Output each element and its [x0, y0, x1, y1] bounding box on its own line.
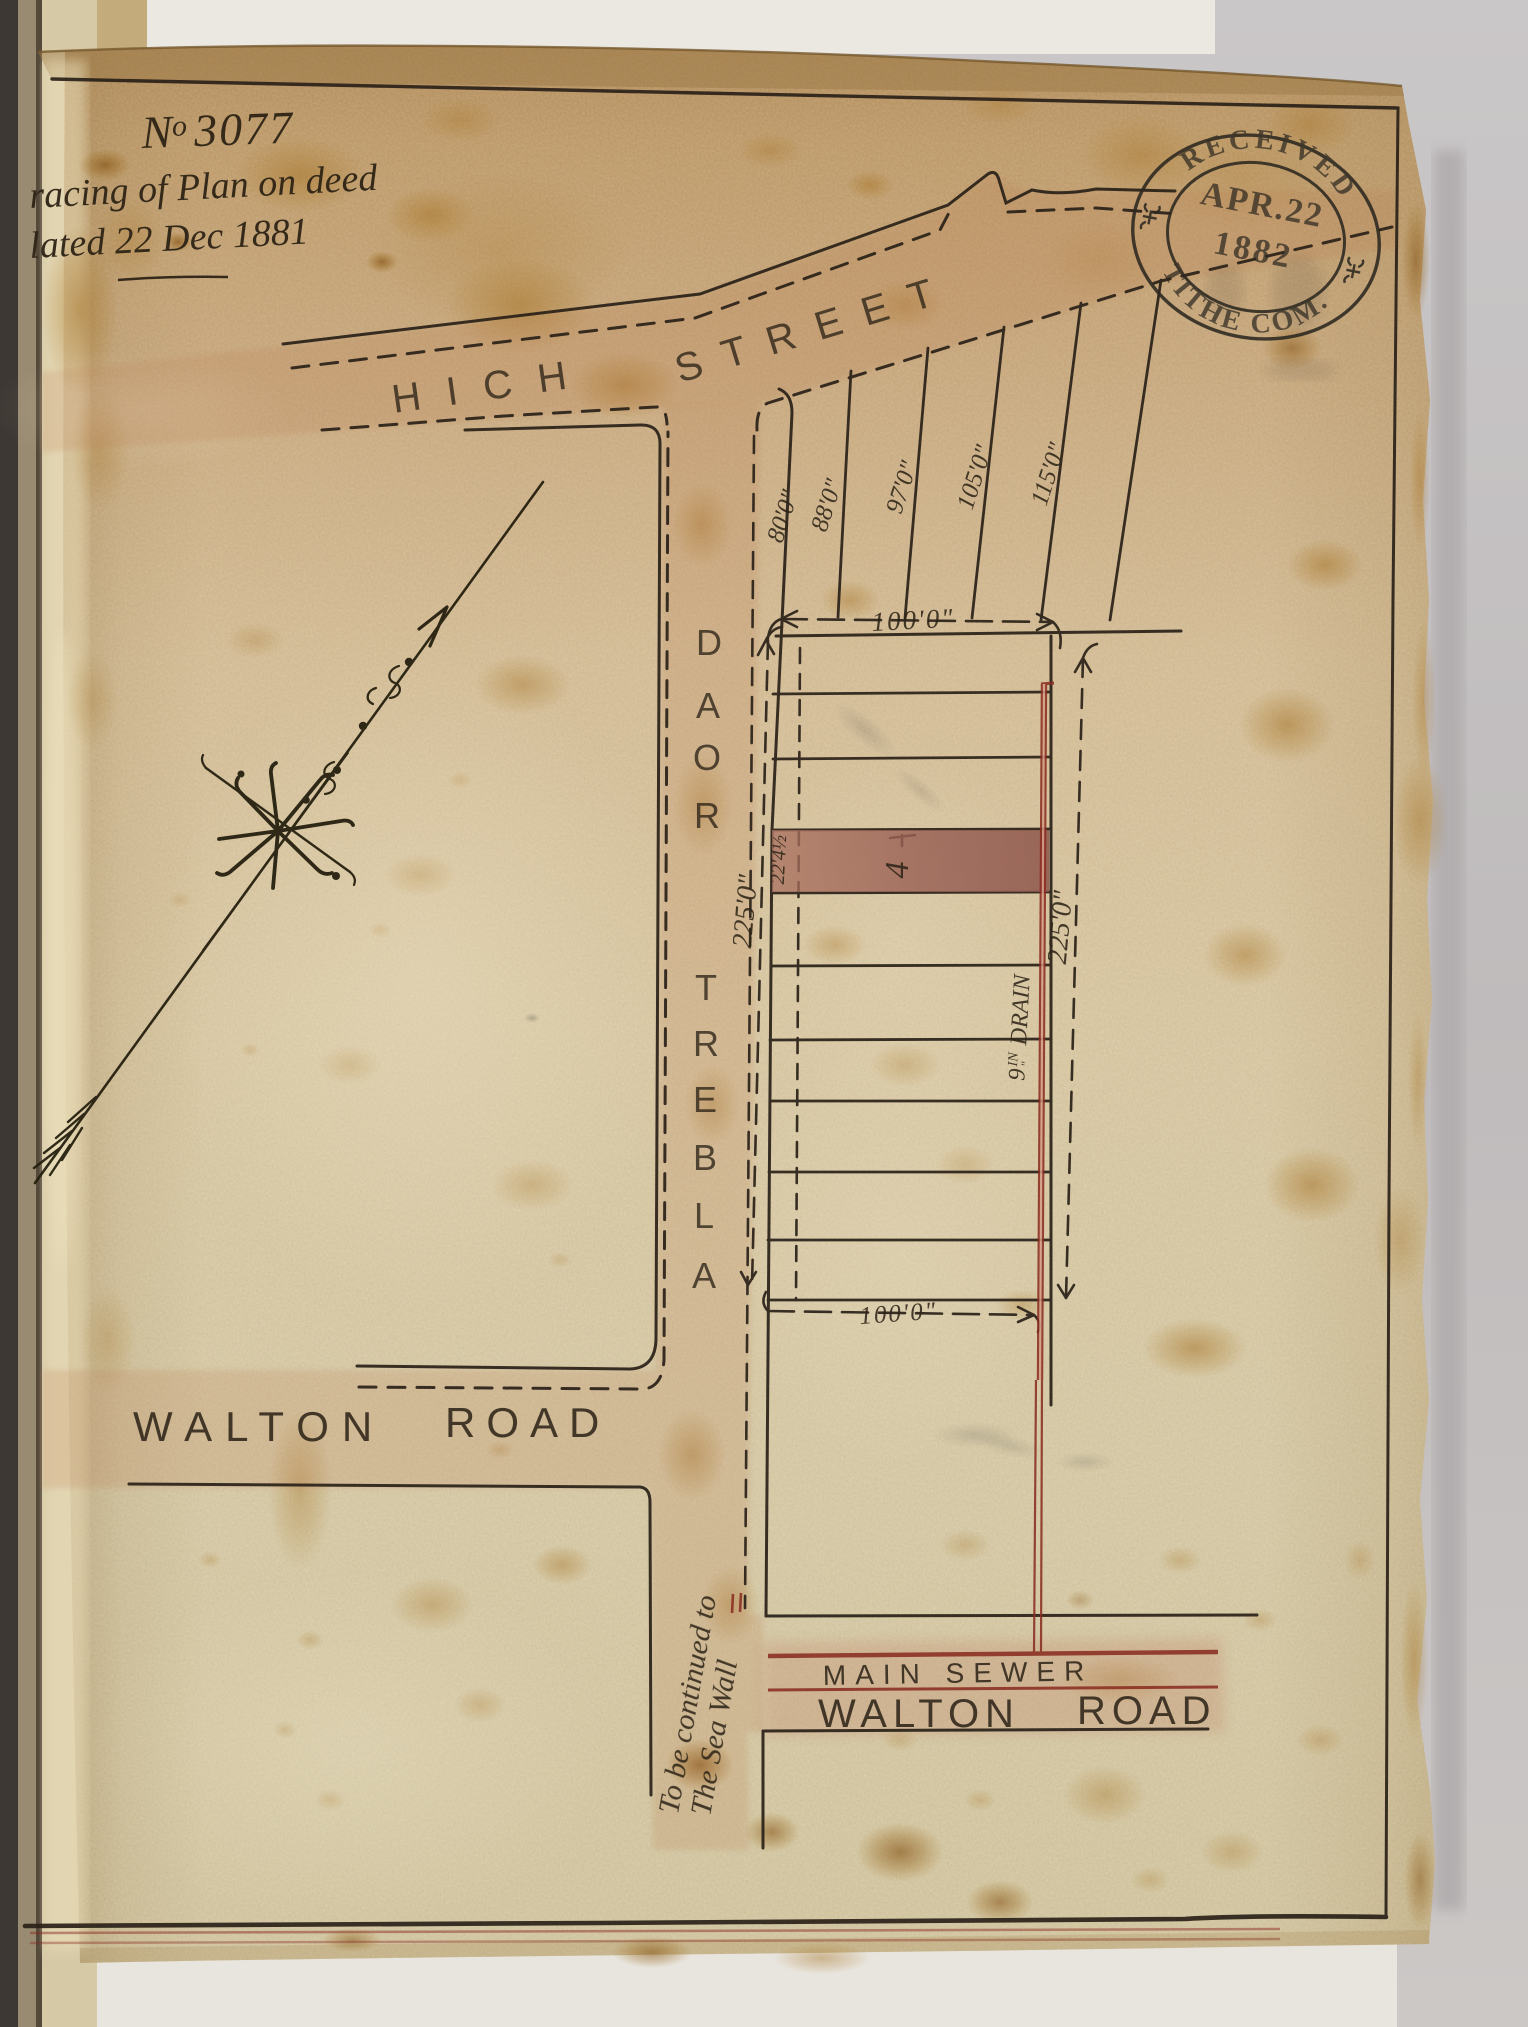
- svg-text:MAIN SEWER: MAIN SEWER: [823, 1655, 1094, 1691]
- svg-text:R: R: [693, 1023, 719, 1064]
- svg-text:A: A: [692, 1255, 716, 1296]
- svg-text:E: E: [693, 1079, 717, 1120]
- svg-text:R: R: [694, 795, 720, 836]
- svg-text:B: B: [693, 1137, 717, 1178]
- svg-text:ROAD: ROAD: [445, 1399, 610, 1446]
- svg-text:4: 4: [879, 862, 916, 879]
- svg-text:T: T: [695, 967, 717, 1008]
- svg-text:9IN"DRAIN: 9IN"DRAIN: [1004, 972, 1038, 1081]
- svg-text:No3077: No3077: [140, 102, 295, 158]
- svg-text:WALTON: WALTON: [133, 1403, 385, 1450]
- svg-text:225'0": 225'0": [727, 873, 764, 949]
- svg-text:ROAD: ROAD: [1077, 1689, 1217, 1733]
- svg-text:22'4½: 22'4½: [767, 835, 792, 885]
- svg-text:D: D: [696, 622, 722, 663]
- svg-text:A: A: [696, 685, 720, 726]
- svg-text:100'0": 100'0": [871, 603, 956, 637]
- svg-text:100'0": 100'0": [859, 1298, 939, 1330]
- svg-text:O: O: [693, 737, 721, 778]
- svg-text:225'0": 225'0": [1042, 889, 1079, 965]
- svg-text:L: L: [694, 1195, 714, 1236]
- svg-text:WALTON: WALTON: [818, 1692, 1020, 1736]
